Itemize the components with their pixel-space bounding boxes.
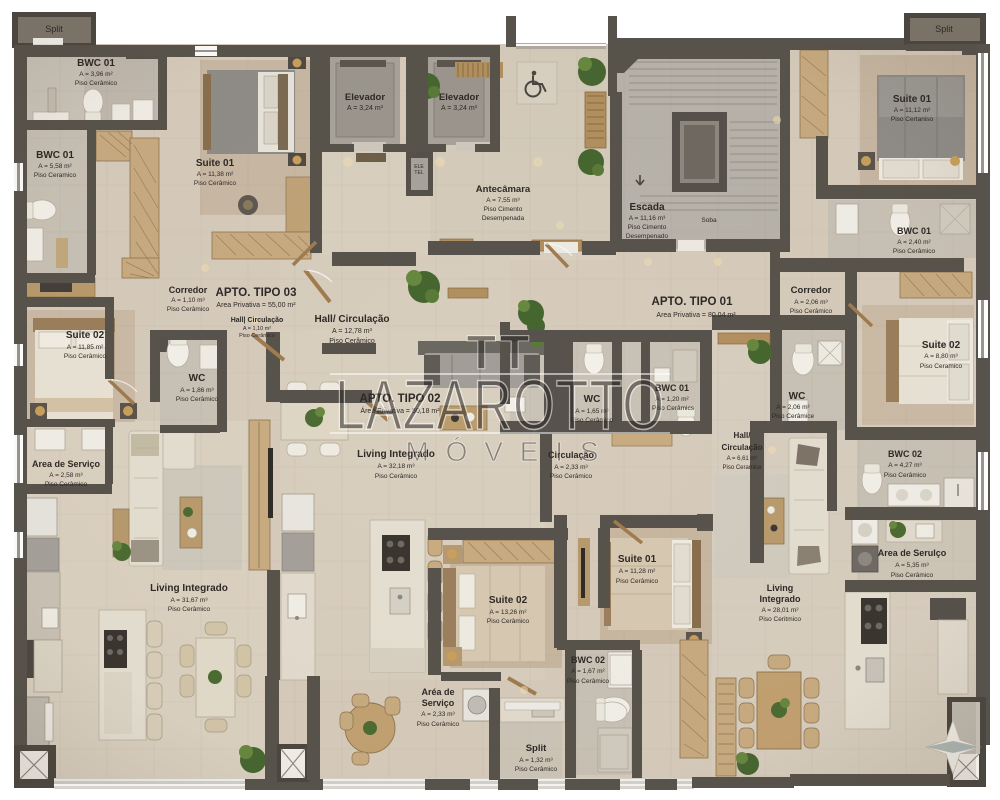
svg-text:Piso Ceritmico: Piso Ceritmico [759,616,801,623]
svg-text:Area de Serulço: Area de Serulço [878,548,947,558]
svg-text:Area Privativa = 55,00 m²: Area Privativa = 55,00 m² [216,302,296,309]
svg-text:Piso Cerâmico: Piso Cerâmico [790,308,833,315]
svg-text:Elevador: Elevador [345,92,385,103]
svg-text:APTO. TIPO 03: APTO. TIPO 03 [216,287,297,299]
svg-text:Corredor: Corredor [791,285,832,296]
svg-text:A = 11,12 m²: A = 11,12 m² [894,107,931,114]
svg-text:Living Integrado: Living Integrado [150,583,228,594]
svg-text:Piso Cerâmico: Piso Cerâmico [45,481,88,488]
svg-text:Suite 02: Suite 02 [489,595,528,606]
svg-text:Suite 01: Suite 01 [893,94,932,105]
svg-text:Piso Cerâmice: Piso Cerâmice [772,413,815,420]
svg-text:A = 28,01 m²: A = 28,01 m² [761,607,799,614]
svg-text:A = 1,10 m²: A = 1,10 m² [243,326,271,332]
svg-text:Piso Ceramico: Piso Ceramico [920,363,963,370]
svg-text:Piso Cerâmico: Piso Cerâmico [329,338,375,345]
svg-text:Piso Ceramico: Piso Ceramico [34,172,77,179]
svg-text:Corredor: Corredor [169,285,208,295]
svg-text:A = 11,85 m²: A = 11,85 m² [67,344,104,351]
svg-text:A = 2,33 m³: A = 2,33 m³ [421,711,455,718]
svg-text:Desempenado: Desempenado [626,233,669,240]
svg-text:Area Privativa = 80.04 m²: Area Privativa = 80.04 m² [656,312,736,319]
svg-text:A = 11,16 m³: A = 11,16 m³ [629,215,666,222]
svg-text:Piso Cerâmico: Piso Cerâmico [64,353,107,360]
svg-text:A = 2,06 m³: A = 2,06 m³ [794,299,828,306]
svg-text:Antecâmara: Antecâmara [476,184,531,195]
svg-text:Suite 02: Suite 02 [66,330,105,341]
svg-text:Escada: Escada [629,202,664,213]
svg-text:Hall| Circulação: Hall| Circulação [231,317,284,324]
svg-text:A = 1,86 m³: A = 1,86 m³ [180,387,214,394]
svg-text:Area de Serviço: Area de Serviço [32,459,101,469]
svg-text:A = 31,67 m³: A = 31,67 m³ [170,597,208,604]
svg-text:Desempenada: Desempenada [482,215,525,222]
svg-text:Elevador: Elevador [439,92,479,103]
svg-text:A = 12,78 m³: A = 12,78 m³ [332,328,373,335]
svg-text:Piso Cimento: Piso Cimento [484,206,523,213]
svg-text:A = 1,32 m³: A = 1,32 m³ [519,757,553,764]
svg-text:A = 3,24 m³: A = 3,24 m³ [441,105,478,112]
svg-text:Piso Cimento: Piso Cimento [628,224,667,231]
svg-text:Piso Cerâmico: Piso Cerâmico [891,572,934,579]
svg-text:A = 5,58 m²: A = 5,58 m² [38,163,72,170]
svg-text:Piso Cerâmico: Piso Cerâmico [176,396,219,403]
svg-text:Piso Cerâmico: Piso Cerâmico [239,333,275,339]
svg-text:A = 3,96 m²: A = 3,96 m² [79,71,113,78]
svg-text:Piso Cerâmico: Piso Cerâmico [194,180,237,187]
svg-text:BWC 01: BWC 01 [897,226,931,236]
svg-text:Piso Cerâmico: Piso Cerâmico [515,766,558,773]
svg-text:A = 13,26 m²: A = 13,26 m² [489,609,527,616]
svg-text:BWC 01: BWC 01 [77,58,115,69]
svg-text:Piso Cerâmico: Piso Cerâmico [616,578,659,585]
svg-text:Piso Ceramice: Piso Ceramice [722,465,762,471]
svg-text:BWC 01: BWC 01 [36,150,74,161]
svg-text:Piso Cerâmico: Piso Cerâmico [375,473,418,480]
svg-text:Split: Split [935,24,953,34]
svg-text:Piso Cerâmico: Piso Cerâmico [168,606,211,613]
svg-text:TEL: TEL [414,170,423,176]
svg-text:Suite 02: Suite 02 [922,340,961,351]
svg-text:Living: Living [767,583,794,593]
svg-text:A = 2,06 m²: A = 2,06 m² [776,404,810,411]
svg-text:A = 1,67 m²: A = 1,67 m² [571,668,605,675]
svg-text:Circulação: Circulação [722,443,763,452]
svg-text:Suite 01: Suite 01 [196,158,235,169]
svg-text:BWC 02: BWC 02 [571,655,605,665]
svg-text:A = 3,24 m³: A = 3,24 m³ [347,105,384,112]
svg-text:A = 8,80 m³: A = 8,80 m³ [924,353,958,360]
svg-text:Serviço: Serviço [422,698,455,708]
svg-text:Piso Cerâmico: Piso Cerâmico [893,248,936,255]
svg-text:A = 11,28 m²: A = 11,28 m² [619,568,656,575]
svg-text:A = 1,10 m³: A = 1,10 m³ [171,297,205,304]
svg-text:Aréa de: Aréa de [421,687,454,697]
svg-text:Piso Cerâmico: Piso Cerâmico [567,678,610,685]
svg-text:APTO. TIPO 01: APTO. TIPO 01 [652,296,734,308]
svg-text:Suite 01: Suite 01 [618,554,657,565]
svg-text:Split: Split [45,24,63,34]
svg-text:Piso Cerâmico: Piso Cerâmico [550,473,593,480]
svg-text:A = 6,61 m³: A = 6,61 m³ [727,456,758,462]
svg-text:Piso Cerâmico: Piso Cerâmico [167,306,210,313]
svg-text:A = 2,40 m²: A = 2,40 m² [897,239,931,246]
svg-text:Piso Certaniso: Piso Certaniso [891,116,934,123]
svg-text:Split: Split [526,743,547,754]
svg-text:Soba: Soba [701,217,717,224]
svg-text:A = 4,27 m³: A = 4,27 m³ [888,462,922,469]
svg-text:Piso Cerâmico: Piso Cerâmico [487,618,530,625]
svg-text:A = 11,38 m²: A = 11,38 m² [197,171,234,178]
svg-text:A = 2,58 m³: A = 2,58 m³ [49,472,83,479]
svg-text:WC: WC [189,373,206,384]
svg-text:Piso Cerâmico: Piso Cerâmico [75,80,118,87]
svg-text:Piso Cerâmico: Piso Cerâmico [417,721,460,728]
svg-text:Piso Cerâmico: Piso Cerâmico [884,472,927,479]
svg-text:A = 5,35 m³: A = 5,35 m³ [895,562,929,569]
svg-text:BWC 02: BWC 02 [888,449,922,459]
svg-text:Hall/: Hall/ [734,431,752,440]
svg-text:A = 7,55 m³: A = 7,55 m³ [486,197,520,204]
svg-text:MÓVEIS: MÓVEIS [406,436,611,467]
svg-text:WC: WC [789,391,806,402]
svg-text:Hall/ Circulação: Hall/ Circulação [314,314,389,325]
svg-text:Integrado: Integrado [759,594,801,604]
